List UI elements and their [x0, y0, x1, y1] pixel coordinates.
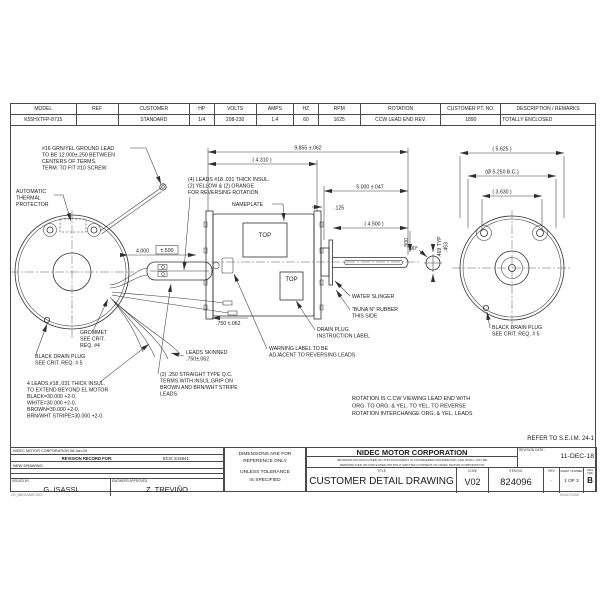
dim-500-text: .500 — [404, 238, 410, 248]
lead-bundle — [110, 262, 237, 359]
sheet-number-label: SHEET NUMBER — [560, 469, 583, 473]
rev-label: REV — [544, 469, 559, 473]
shaft — [333, 258, 409, 268]
revision-date-label: REVISION DATE : — [519, 448, 545, 452]
water-slinger-shape — [329, 240, 333, 285]
note-ground-lead: #16 GRN/YEL GROUND LEAD — [42, 146, 114, 152]
note-grommet: GROMMET — [80, 330, 108, 336]
note-drain-instruction-label: INSTRUCTION LABEL — [317, 334, 370, 340]
corp-date: NIDEC MOTOR CORPORATION 08-Jan-19 — [11, 448, 223, 455]
revision-date-cell: REVISION DATE : 11-DEC-18 — [518, 448, 596, 467]
note-ground-lead: TO BE 12.000±.250 BETWEEN — [42, 153, 115, 159]
side-view: TOP TOP — [196, 211, 420, 319]
dim-453-text: .453 — [444, 242, 450, 252]
dim-5250-text: (Ø 5.250 B.C.) — [485, 170, 519, 176]
note-thermal-protector: THERMAL — [16, 196, 41, 202]
note-thermal-protector: PROTECTOR — [16, 202, 49, 208]
note-rotation: ORG. TO ORG. & YEL. TO YEL. TO REVERSE — [352, 404, 466, 410]
item-no-label: ITEM NO. — [489, 469, 543, 473]
motor-drawing: 4.000 ±.500 TOP TOP — [0, 0, 600, 600]
title-cell: TITLE CUSTOMER DETAIL DRAWING — [307, 468, 457, 493]
note-grommet: REQ. #4 — [80, 343, 100, 349]
dwg-size-label: DWG SIZE — [584, 469, 596, 475]
dim-overall-text: 9.855 ±.062 — [294, 146, 321, 152]
dims-note-line: REFERENCE ONLY — [225, 458, 305, 465]
note-buna-rubber: THIS SIDE — [352, 314, 378, 320]
note-rotation: ROTATION IS C.CW VIEWING LEAD END WITH — [352, 396, 470, 402]
note-drain-instruction-label: DRAIN PLUG — [317, 327, 349, 333]
note-qc-terminals: (2) .250 STRAIGHT TYPE Q.C. — [160, 372, 232, 378]
dims-note-line: DIMENSIONS ARE FOR — [225, 451, 305, 458]
ground-lead — [100, 184, 166, 234]
drawing-title: CUSTOMER DETAIL DRAWING — [307, 476, 456, 487]
revision-date-value: 11-DEC-18 — [518, 453, 594, 460]
note-drain-plug-right: BLACK DRAIN PLUG — [492, 325, 542, 331]
top-label-instruction: TOP — [285, 277, 297, 283]
cad-system-note: SOLID EDGE — [560, 493, 580, 497]
note-four-leads: BLACK=30.000 +2-0, — [27, 394, 76, 400]
note-four-leads: BRN/WHT STRIPE=30.000 +2-0. — [27, 414, 104, 420]
proprietary-note: REPRODUCED OR DISCLOSED WITHOUT WRITTEN … — [307, 463, 517, 468]
note-four-leads: TO EXTEND BEYOND EL MOTOR — [27, 388, 108, 394]
drawing-sheet: MODEL REF CUSTOMER HP VOLTS AMPS HZ RPM … — [0, 0, 600, 600]
title-block: NIDEC MOTOR CORPORATION 08-Jan-19 REVISI… — [10, 447, 597, 492]
title-label: TITLE — [307, 469, 456, 473]
dim-469-text: .469 TYP — [437, 236, 443, 258]
note-reversing-leads: (4) LEADS #18 .031 THICK INSUL. — [188, 177, 270, 183]
note-qc-terminals: LEADS. — [160, 392, 178, 398]
dim-4310-text: ( 4.310 ) — [252, 158, 272, 164]
engineer-approved-label: ENGINEER APPROVED: — [112, 479, 148, 483]
dim-5625-text: ( 5.625 ) — [492, 147, 512, 153]
dim-4000-text: 4.000 — [136, 249, 149, 255]
refer-note: REFER TO S.E.I.M. 24-1 — [430, 436, 594, 442]
note-drain-plug-left: SEE CRIT. REQ. # 5 — [35, 361, 83, 367]
eco-number: ECO: E32641 — [163, 456, 223, 461]
note-leads-skinned: .750±.062 — [186, 357, 209, 363]
shaft-section-view: 90° .469 TYP .453 .500 — [404, 231, 450, 282]
note-four-leads: WHITE=30.000 +2-0, — [27, 401, 76, 407]
dim-4500-text: ( 4.500 ) — [364, 222, 384, 228]
note-four-leads: BROWN=30.000 +2-0, — [27, 407, 79, 413]
note-warning-label: WARNING LABEL TO BE — [269, 346, 329, 352]
form-code: CD_NMC8 MAR-2014 — [11, 493, 43, 497]
revision-record-block: NIDEC MOTOR CORPORATION 08-Jan-19 REVISI… — [10, 447, 224, 492]
note-ground-lead: TERM. TO FIT #10 SCREW — [42, 166, 107, 172]
nameplate-outline — [243, 223, 287, 257]
note-nameplate: NAMEPLATE — [232, 202, 264, 208]
dwg-size-cell: DWG SIZE B — [584, 468, 596, 493]
dims-note-line: UNLESS TOLERANCE — [225, 469, 305, 476]
title-block-main: NIDEC MOTOR CORPORATION INFORMATION DISC… — [306, 447, 597, 492]
note-rotation: ROTATION INTERCHANGE ORG. & YEL. LEADS — [352, 411, 473, 417]
dwg-size-value: B — [584, 476, 596, 485]
note-warning-label: ADJACENT TO REVERSING LEADS — [269, 353, 356, 359]
note-leads-skinned: LEADS SKINNED — [186, 350, 228, 356]
dim-90-text: 90° — [410, 246, 418, 252]
top-label-nameplate: TOP — [259, 233, 271, 239]
sheet-number-value: 1 OF 3 — [560, 479, 583, 484]
note-four-leads: 4 LEADS,#18,.031 THICK INSUL. — [27, 381, 105, 387]
dim-5000-text: 5.000 ±.047 — [356, 185, 383, 191]
note-reversing-leads: FOR REVERSING ROTATION — [188, 190, 259, 196]
opposite-end-view — [452, 210, 572, 330]
note-grommet: SEE CRIT. — [80, 337, 105, 343]
note-drain-plug-left: BLACK DRAIN PLUG — [35, 354, 85, 360]
warning-label-outline — [222, 258, 233, 273]
sheet-number-cell: SHEET NUMBER 1 OF 3 — [560, 468, 584, 493]
note-qc-terminals: TERMS.WITH INSUL.GRIP ON — [160, 379, 233, 385]
leader-lines — [36, 148, 490, 382]
dim-3630-text: ( 3.630 ) — [492, 190, 512, 196]
item-no-value: 824096 — [489, 477, 543, 488]
code-label: CODE — [457, 469, 488, 473]
revision-record-label: REVISION RECORD FOR: — [11, 456, 163, 461]
issued-by-label: ISSUED BY: — [12, 479, 30, 483]
note-thermal-protector: AUTOMATIC — [16, 189, 46, 195]
dim-4000-tol-text: ±.500 — [161, 248, 174, 254]
annotation-text: #16 GRN/YEL GROUND LEAD TO BE 12.000±.25… — [16, 146, 542, 420]
engineer-approved-cell: ENGINEER APPROVED: Z. TREVIÑO — [111, 479, 223, 496]
dims-note-line: IS SPECIFIED — [225, 477, 305, 484]
note-drain-plug-right: SEE CRIT. REQ. # 5 — [492, 332, 540, 338]
item-no-cell: ITEM NO. 824096 — [489, 468, 544, 493]
code-cell: CODE V02 — [457, 468, 489, 493]
note-buna-rubber: "BUNA N" RUBBER — [352, 307, 398, 313]
note-reversing-leads: (2) YELLOW & (2) ORANGE — [188, 184, 254, 190]
note-ground-lead: CENTERS OF TERMS. — [42, 159, 96, 165]
note-qc-terminals: BROWN AND BRN/WHT STRIPE — [160, 385, 238, 391]
rev-cell: REV - — [544, 468, 560, 493]
thermal-protector-outline — [60, 219, 86, 232]
code-value: V02 — [457, 477, 488, 487]
dimensions-note-box: DIMENSIONS ARE FOR REFERENCE ONLY UNLESS… — [224, 447, 306, 492]
revision-entry: NEW DRAWING. — [11, 462, 223, 469]
dim-750-text: .750 ±.062 — [216, 321, 241, 327]
note-water-slinger: WATER SLINGER — [352, 294, 395, 300]
company-name: NIDEC MOTOR CORPORATION — [307, 448, 517, 457]
dim-125-text: .125 — [334, 206, 344, 212]
engineer-approved-name: Z. TREVIÑO — [111, 485, 223, 494]
rev-value: - — [544, 477, 559, 482]
